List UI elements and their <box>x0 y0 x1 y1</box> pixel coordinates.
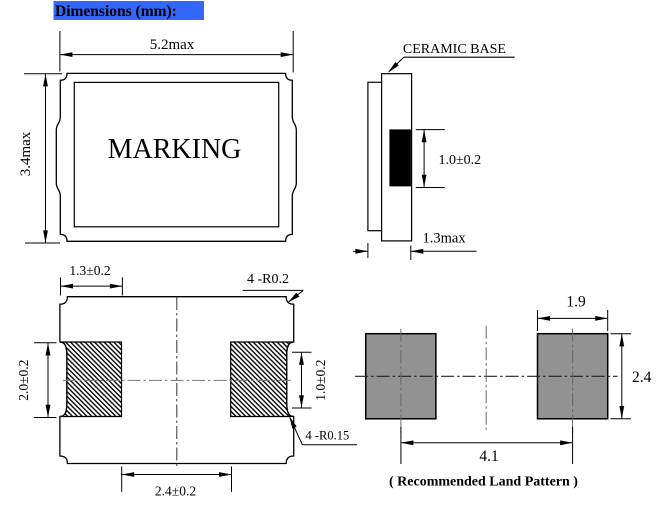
svg-text:1.3max: 1.3max <box>423 231 467 247</box>
svg-text:( Recommended Land Pattern ): ( Recommended Land Pattern ) <box>389 475 578 490</box>
svg-text:4 -R0.15: 4 -R0.15 <box>306 429 350 443</box>
svg-text:MARKING: MARKING <box>108 134 242 165</box>
svg-text:3.4max: 3.4max <box>18 131 34 176</box>
svg-text:1.3±0.2: 1.3±0.2 <box>69 263 110 278</box>
svg-text:1.0±0.2: 1.0±0.2 <box>313 360 328 401</box>
svg-text:2.4: 2.4 <box>632 369 652 386</box>
svg-text:1.0±0.2: 1.0±0.2 <box>439 153 482 168</box>
svg-text:Dimensions (mm):: Dimensions (mm): <box>55 3 177 20</box>
svg-text:2.4±0.2: 2.4±0.2 <box>155 484 196 499</box>
svg-text:5.2max: 5.2max <box>150 37 195 53</box>
svg-text:4.1: 4.1 <box>479 448 498 465</box>
svg-text:CERAMIC BASE: CERAMIC BASE <box>403 42 506 57</box>
svg-text:4 -R0.2: 4 -R0.2 <box>247 272 289 287</box>
svg-text:1.9: 1.9 <box>566 294 586 311</box>
svg-text:2.0±0.2: 2.0±0.2 <box>16 360 31 401</box>
